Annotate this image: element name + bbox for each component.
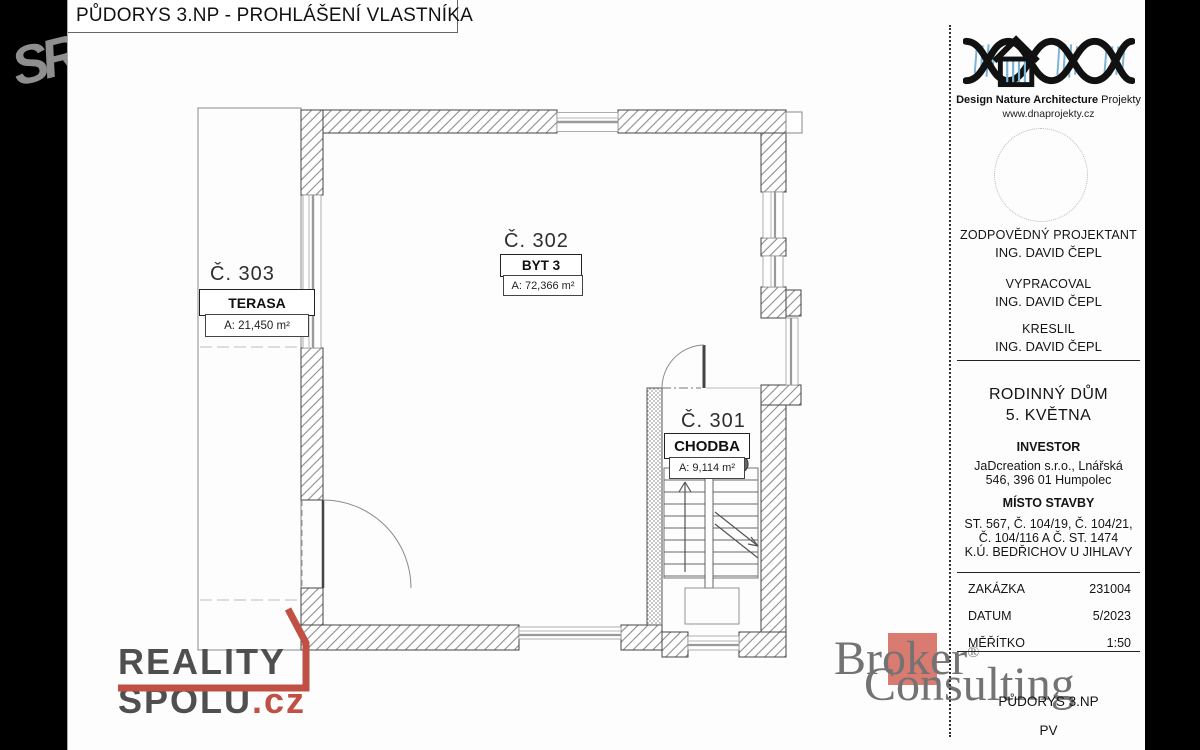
- page-title: PŮDORYS 3.NP - PROHLÁŠENÍ VLASTNÍKA: [68, 5, 473, 27]
- windows: [303, 113, 798, 651]
- investor-line1: JaDcreation s.r.o., Lnářská: [951, 459, 1146, 473]
- door-chodba: [662, 345, 761, 388]
- terrace-outline: [198, 108, 301, 650]
- meta-label: MĚŘÍTKO: [968, 636, 1025, 650]
- room-number-byt: Č. 302: [504, 230, 569, 253]
- role-kreslil: KRESLIL ING. DAVID ČEPL: [951, 322, 1146, 354]
- role-label: VYPRACOVAL: [951, 277, 1146, 291]
- meta-value: 231004: [1089, 582, 1131, 596]
- door-left-wall: [302, 500, 411, 588]
- meta-label: ZAKÁZKA: [968, 582, 1025, 596]
- facade-notch: [786, 112, 802, 133]
- left-black-bar: [0, 0, 67, 750]
- room-number-chodba: Č. 301: [681, 410, 746, 433]
- room-number-terasa: Č. 303: [210, 263, 275, 286]
- room-area-chodba: A: 9,114 m²: [669, 457, 745, 479]
- dna-logo: Design Nature Architecture Projekty www.…: [951, 33, 1146, 120]
- role-label: KRESLIL: [951, 322, 1146, 336]
- role-vypracoval: VYPRACOVAL ING. DAVID ČEPL: [951, 277, 1146, 309]
- dna-brand-bold: Design Nature Architecture: [956, 94, 1098, 106]
- dna-brand-regular: Projekty: [1098, 94, 1141, 106]
- title-block: Design Nature Architecture Projekty www.…: [951, 0, 1146, 750]
- role-value: ING. DAVID ČEPL: [951, 245, 1146, 260]
- room-area-byt: A: 72,366 m²: [503, 275, 583, 296]
- staircase: [664, 468, 758, 624]
- meta-meritko: MĚŘÍTKO 1:50: [968, 636, 1131, 650]
- sheet-title-bar: PŮDORYS 3.NP - PROHLÁŠENÍ VLASTNÍKA: [68, 0, 458, 33]
- meta-zakazka: ZAKÁZKA 231004: [968, 582, 1131, 596]
- drawing-code: PV: [951, 723, 1146, 738]
- investor-label: INVESTOR: [951, 440, 1146, 454]
- room-name-chodba: CHODBA: [664, 433, 750, 459]
- meta-label: DATUM: [968, 609, 1012, 623]
- site-line3: K.Ú. BEDŘICHOV U JIHLAVY: [951, 545, 1146, 559]
- role-projektant: ZODPOVĚDNÝ PROJEKTANT ING. DAVID ČEPL: [951, 228, 1146, 260]
- role-value: ING. DAVID ČEPL: [951, 339, 1146, 354]
- divider-line: [957, 651, 1140, 652]
- divider-line: [957, 360, 1140, 361]
- drawing-name: PŮDORYS 3.NP: [951, 694, 1146, 709]
- partition-wall: [647, 388, 662, 625]
- room-name-byt: BYT 3: [500, 254, 582, 277]
- meta-value: 5/2023: [1093, 609, 1131, 623]
- meta-datum: DATUM 5/2023: [968, 609, 1131, 623]
- dna-helix-house-icon: [963, 33, 1135, 89]
- room-area-terasa: A: 21,450 m²: [205, 314, 309, 337]
- site-line1: ST. 567, Č. 104/19, Č. 104/21,: [951, 517, 1146, 531]
- project-line1: RODINNÝ DŮM: [951, 386, 1146, 404]
- role-value: ING. DAVID ČEPL: [951, 294, 1146, 309]
- site-label: MÍSTO STAVBY: [951, 496, 1146, 510]
- room-name-terasa: TERASA: [199, 289, 315, 316]
- right-black-bar: [1145, 0, 1200, 750]
- site-line2: Č. 104/116 A Č. ST. 1474: [951, 531, 1146, 545]
- title-block-separator: [949, 25, 951, 737]
- divider-line: [957, 572, 1140, 573]
- reality-spolu-watermark: REALITY SPOLU.cz: [118, 643, 306, 721]
- drawing-sheet-viewer: SR PŮDORYS 3.NP - PROHLÁŠENÍ VLASTNÍKA: [0, 0, 1200, 750]
- dna-website: www.dnaprojekty.cz: [951, 108, 1146, 120]
- role-label: ZODPOVĚDNÝ PROJEKTANT: [951, 228, 1146, 242]
- project-name: RODINNÝ DŮM 5. KVĚTNA: [951, 386, 1146, 425]
- meta-value: 1:50: [1107, 636, 1131, 650]
- reality-bracket-line: [112, 603, 342, 733]
- walls: [301, 110, 801, 657]
- paper-sheet: PŮDORYS 3.NP - PROHLÁŠENÍ VLASTNÍKA: [67, 0, 1146, 750]
- floor-plan-drawing: [181, 80, 971, 680]
- project-line2: 5. KVĚTNA: [951, 407, 1146, 425]
- investor-line2: 546, 396 01 Humpolec: [951, 473, 1146, 487]
